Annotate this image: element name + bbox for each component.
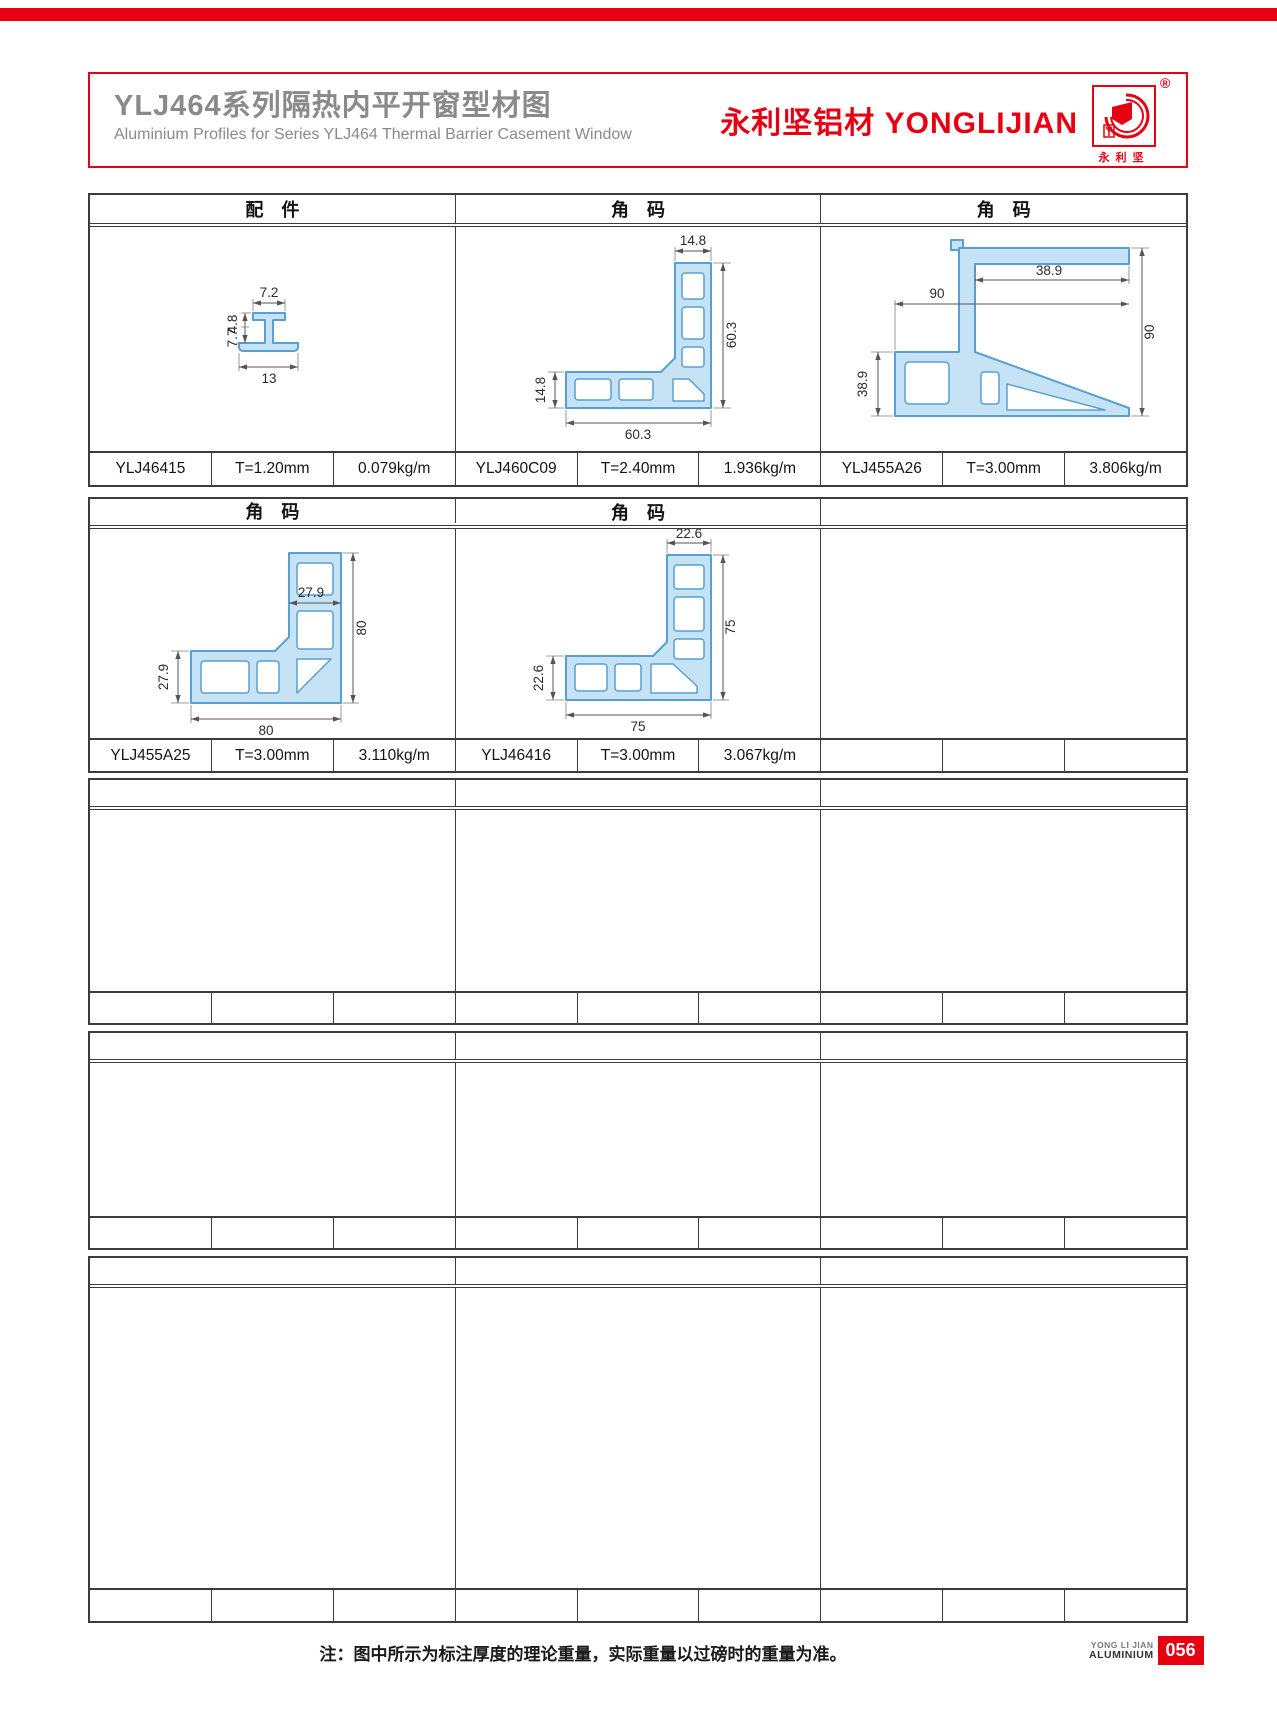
product-weight	[1065, 993, 1186, 1023]
section1-label-row: YLJ46415 T=1.20mm 0.079kg/m YLJ460C09 T=…	[90, 451, 1186, 485]
product-code	[821, 993, 943, 1023]
section5-header-row	[90, 1258, 1186, 1288]
drawing-cell-YLJ455A26: 38.9 90 90 38.9	[821, 227, 1186, 451]
product-code	[821, 740, 943, 771]
header-cell-empty	[821, 1033, 1186, 1059]
section5-label-row	[90, 1588, 1186, 1621]
product-code: YLJ46416	[456, 740, 578, 771]
page-subtitle: Aluminium Profiles for Series YLJ464 The…	[114, 126, 720, 144]
header-cell-corner-key: 角 码	[821, 195, 1186, 223]
header-cell-empty	[821, 499, 1186, 525]
section4-header-row	[90, 1033, 1186, 1063]
section1-header-row: 配 件 角 码 角 码	[90, 195, 1186, 227]
product-thickness	[212, 993, 334, 1023]
drawing-cell-empty	[821, 810, 1186, 991]
product-thickness	[578, 1218, 700, 1248]
badge-line2: ALUMINIUM	[1089, 1650, 1154, 1661]
product-code: YLJ46415	[90, 453, 212, 485]
dim-label: 90	[929, 286, 944, 301]
dim-label: 27.9	[298, 585, 324, 600]
page-number: 056	[1158, 1636, 1204, 1665]
drawing-cell-empty	[821, 1288, 1186, 1588]
dim-label: 60.3	[724, 322, 739, 348]
logo-frame	[1092, 85, 1156, 147]
product-weight	[1065, 1590, 1186, 1621]
table-section-5	[88, 1256, 1188, 1623]
dim-label: 13	[262, 371, 277, 386]
product-thickness	[943, 1590, 1065, 1621]
brand-name-en: YONGLIJIAN	[885, 107, 1078, 140]
dim-label: 7.2	[260, 285, 279, 300]
product-code	[821, 1218, 943, 1248]
header-cell-empty	[456, 1258, 822, 1284]
product-code: YLJ455A25	[90, 740, 212, 771]
header-cell-empty	[456, 780, 822, 806]
profile-drawing-YLJ455A26: 38.9 90 90 38.9	[849, 227, 1159, 451]
product-thickness: T=3.00mm	[578, 740, 700, 771]
table-section-1: 配 件 角 码 角 码 7.2 4.8 7.7 13	[88, 193, 1188, 487]
registered-trademark-icon: ®	[1160, 75, 1170, 91]
header-cell-empty	[90, 1258, 456, 1284]
footer-note: 注：图中所示为标注厚度的理论重量，实际重量以过磅时的重量为准。	[88, 1640, 1078, 1665]
dim-label: 80	[259, 723, 274, 738]
brand-logo: ® 永利坚	[1092, 75, 1174, 165]
product-thickness	[943, 1218, 1065, 1248]
product-weight	[699, 1218, 821, 1248]
product-code	[456, 993, 578, 1023]
header-cell-empty	[90, 1033, 456, 1059]
product-thickness: T=3.00mm	[943, 453, 1065, 485]
product-weight: 3.110kg/m	[334, 740, 456, 771]
header-cell-corner-key: 角 码	[90, 499, 456, 523]
product-weight	[1065, 740, 1186, 771]
header-cell-empty	[456, 1033, 822, 1059]
brand-block: 永利坚铝材 YONGLIJIAN ® 永利坚	[720, 74, 1186, 166]
catalog-page: YLJ464系列隔热内平开窗型材图 Aluminium Profiles for…	[0, 0, 1277, 1721]
drawing-cell-empty	[90, 1288, 456, 1588]
product-weight	[334, 993, 456, 1023]
product-thickness	[212, 1218, 334, 1248]
section2-label-row: YLJ455A25 T=3.00mm 3.110kg/m YLJ46416 T=…	[90, 738, 1186, 771]
section3-label-row	[90, 991, 1186, 1023]
section4-label-row	[90, 1216, 1186, 1248]
logo-caption: 永利坚	[1092, 149, 1156, 165]
product-weight	[699, 1590, 821, 1621]
dim-label: 7.7	[225, 329, 240, 348]
dim-label: 22.6	[531, 664, 546, 690]
title-block: YLJ464系列隔热内平开窗型材图 Aluminium Profiles for…	[90, 74, 720, 166]
product-weight: 0.079kg/m	[334, 453, 456, 485]
header-box: YLJ464系列隔热内平开窗型材图 Aluminium Profiles for…	[88, 72, 1188, 168]
dim-label: 90	[1142, 324, 1157, 339]
dim-label: 14.8	[533, 377, 548, 403]
top-accent-bar	[0, 8, 1277, 21]
product-code	[456, 1590, 578, 1621]
product-thickness	[943, 993, 1065, 1023]
product-weight	[1065, 1218, 1186, 1248]
product-code	[90, 1590, 212, 1621]
product-code	[90, 993, 212, 1023]
product-weight: 1.936kg/m	[699, 453, 821, 485]
product-thickness: T=3.00mm	[212, 740, 334, 771]
drawing-cell-empty	[90, 1063, 456, 1216]
product-thickness	[212, 1590, 334, 1621]
product-code: YLJ460C09	[456, 453, 578, 485]
page-number-badge: YONG LI JIAN ALUMINIUM 056	[1089, 1636, 1204, 1665]
section3-drawing-row	[90, 810, 1186, 991]
section2-header-row: 角 码 角 码	[90, 499, 1186, 529]
product-thickness	[578, 1590, 700, 1621]
dim-label: 75	[723, 619, 738, 634]
drawing-cell-empty	[90, 810, 456, 991]
dim-label: 38.9	[1036, 263, 1062, 278]
product-thickness	[943, 740, 1065, 771]
product-thickness	[578, 993, 700, 1023]
product-code	[456, 1218, 578, 1248]
table-section-3	[88, 778, 1188, 1025]
brand-name-cn: 永利坚铝材	[720, 107, 875, 140]
product-weight: 3.806kg/m	[1065, 453, 1186, 485]
header-cell-empty	[821, 780, 1186, 806]
profile-drawing-YLJ46416: 22.6 75 22.6 75	[521, 529, 756, 738]
product-weight: 3.067kg/m	[699, 740, 821, 771]
drawing-cell-empty	[821, 529, 1186, 738]
product-weight	[334, 1218, 456, 1248]
drawing-cell-YLJ46416: 22.6 75 22.6 75	[456, 529, 822, 738]
section2-drawing-row: 27.9 80 27.9 80	[90, 529, 1186, 738]
dim-label: 38.9	[855, 371, 870, 397]
drawing-cell-empty	[456, 1288, 822, 1588]
logo-swirl-icon	[1098, 91, 1150, 141]
dim-label: 22.6	[675, 529, 701, 541]
header-cell-corner-key: 角 码	[456, 499, 822, 525]
profile-drawing-YLJ46415: 7.2 4.8 7.7 13	[187, 279, 357, 399]
dim-label: 14.8	[680, 233, 706, 248]
table-section-2: 角 码 角 码 27.9 80	[88, 497, 1188, 773]
section3-header-row	[90, 780, 1186, 810]
product-code	[821, 1590, 943, 1621]
product-code: YLJ455A26	[821, 453, 943, 485]
product-weight	[699, 993, 821, 1023]
section1-drawing-row: 7.2 4.8 7.7 13	[90, 227, 1186, 451]
section4-drawing-row	[90, 1063, 1186, 1216]
drawing-cell-empty	[456, 1063, 822, 1216]
section5-drawing-row	[90, 1288, 1186, 1588]
dim-label: 27.9	[156, 663, 171, 689]
drawing-cell-empty	[456, 810, 822, 991]
product-code	[90, 1218, 212, 1248]
header-cell-empty	[821, 1258, 1186, 1284]
page-title: YLJ464系列隔热内平开窗型材图	[114, 88, 720, 124]
dim-label: 80	[354, 620, 369, 635]
header-cell-corner-key: 角 码	[456, 195, 822, 223]
badge-brand-words: YONG LI JIAN ALUMINIUM	[1089, 1641, 1154, 1660]
brand-name: 永利坚铝材 YONGLIJIAN	[720, 98, 1078, 142]
drawing-cell-YLJ46415: 7.2 4.8 7.7 13	[90, 227, 456, 451]
profile-drawing-YLJ460C09: 14.8 60.3 14.8 60.3	[523, 233, 753, 445]
drawing-cell-YLJ460C09: 14.8 60.3 14.8 60.3	[456, 227, 822, 451]
header-cell-empty	[90, 780, 456, 806]
dim-label: 75	[630, 719, 645, 734]
header-cell-accessories: 配 件	[90, 195, 456, 223]
table-section-4	[88, 1031, 1188, 1250]
product-weight	[334, 1590, 456, 1621]
drawing-cell-YLJ455A25: 27.9 80 27.9 80	[90, 529, 456, 738]
product-thickness: T=1.20mm	[212, 453, 334, 485]
drawing-cell-empty	[821, 1063, 1186, 1216]
dim-label: 60.3	[625, 427, 651, 442]
product-thickness: T=2.40mm	[578, 453, 700, 485]
profile-drawing-YLJ455A25: 27.9 80 27.9 80	[147, 529, 397, 738]
